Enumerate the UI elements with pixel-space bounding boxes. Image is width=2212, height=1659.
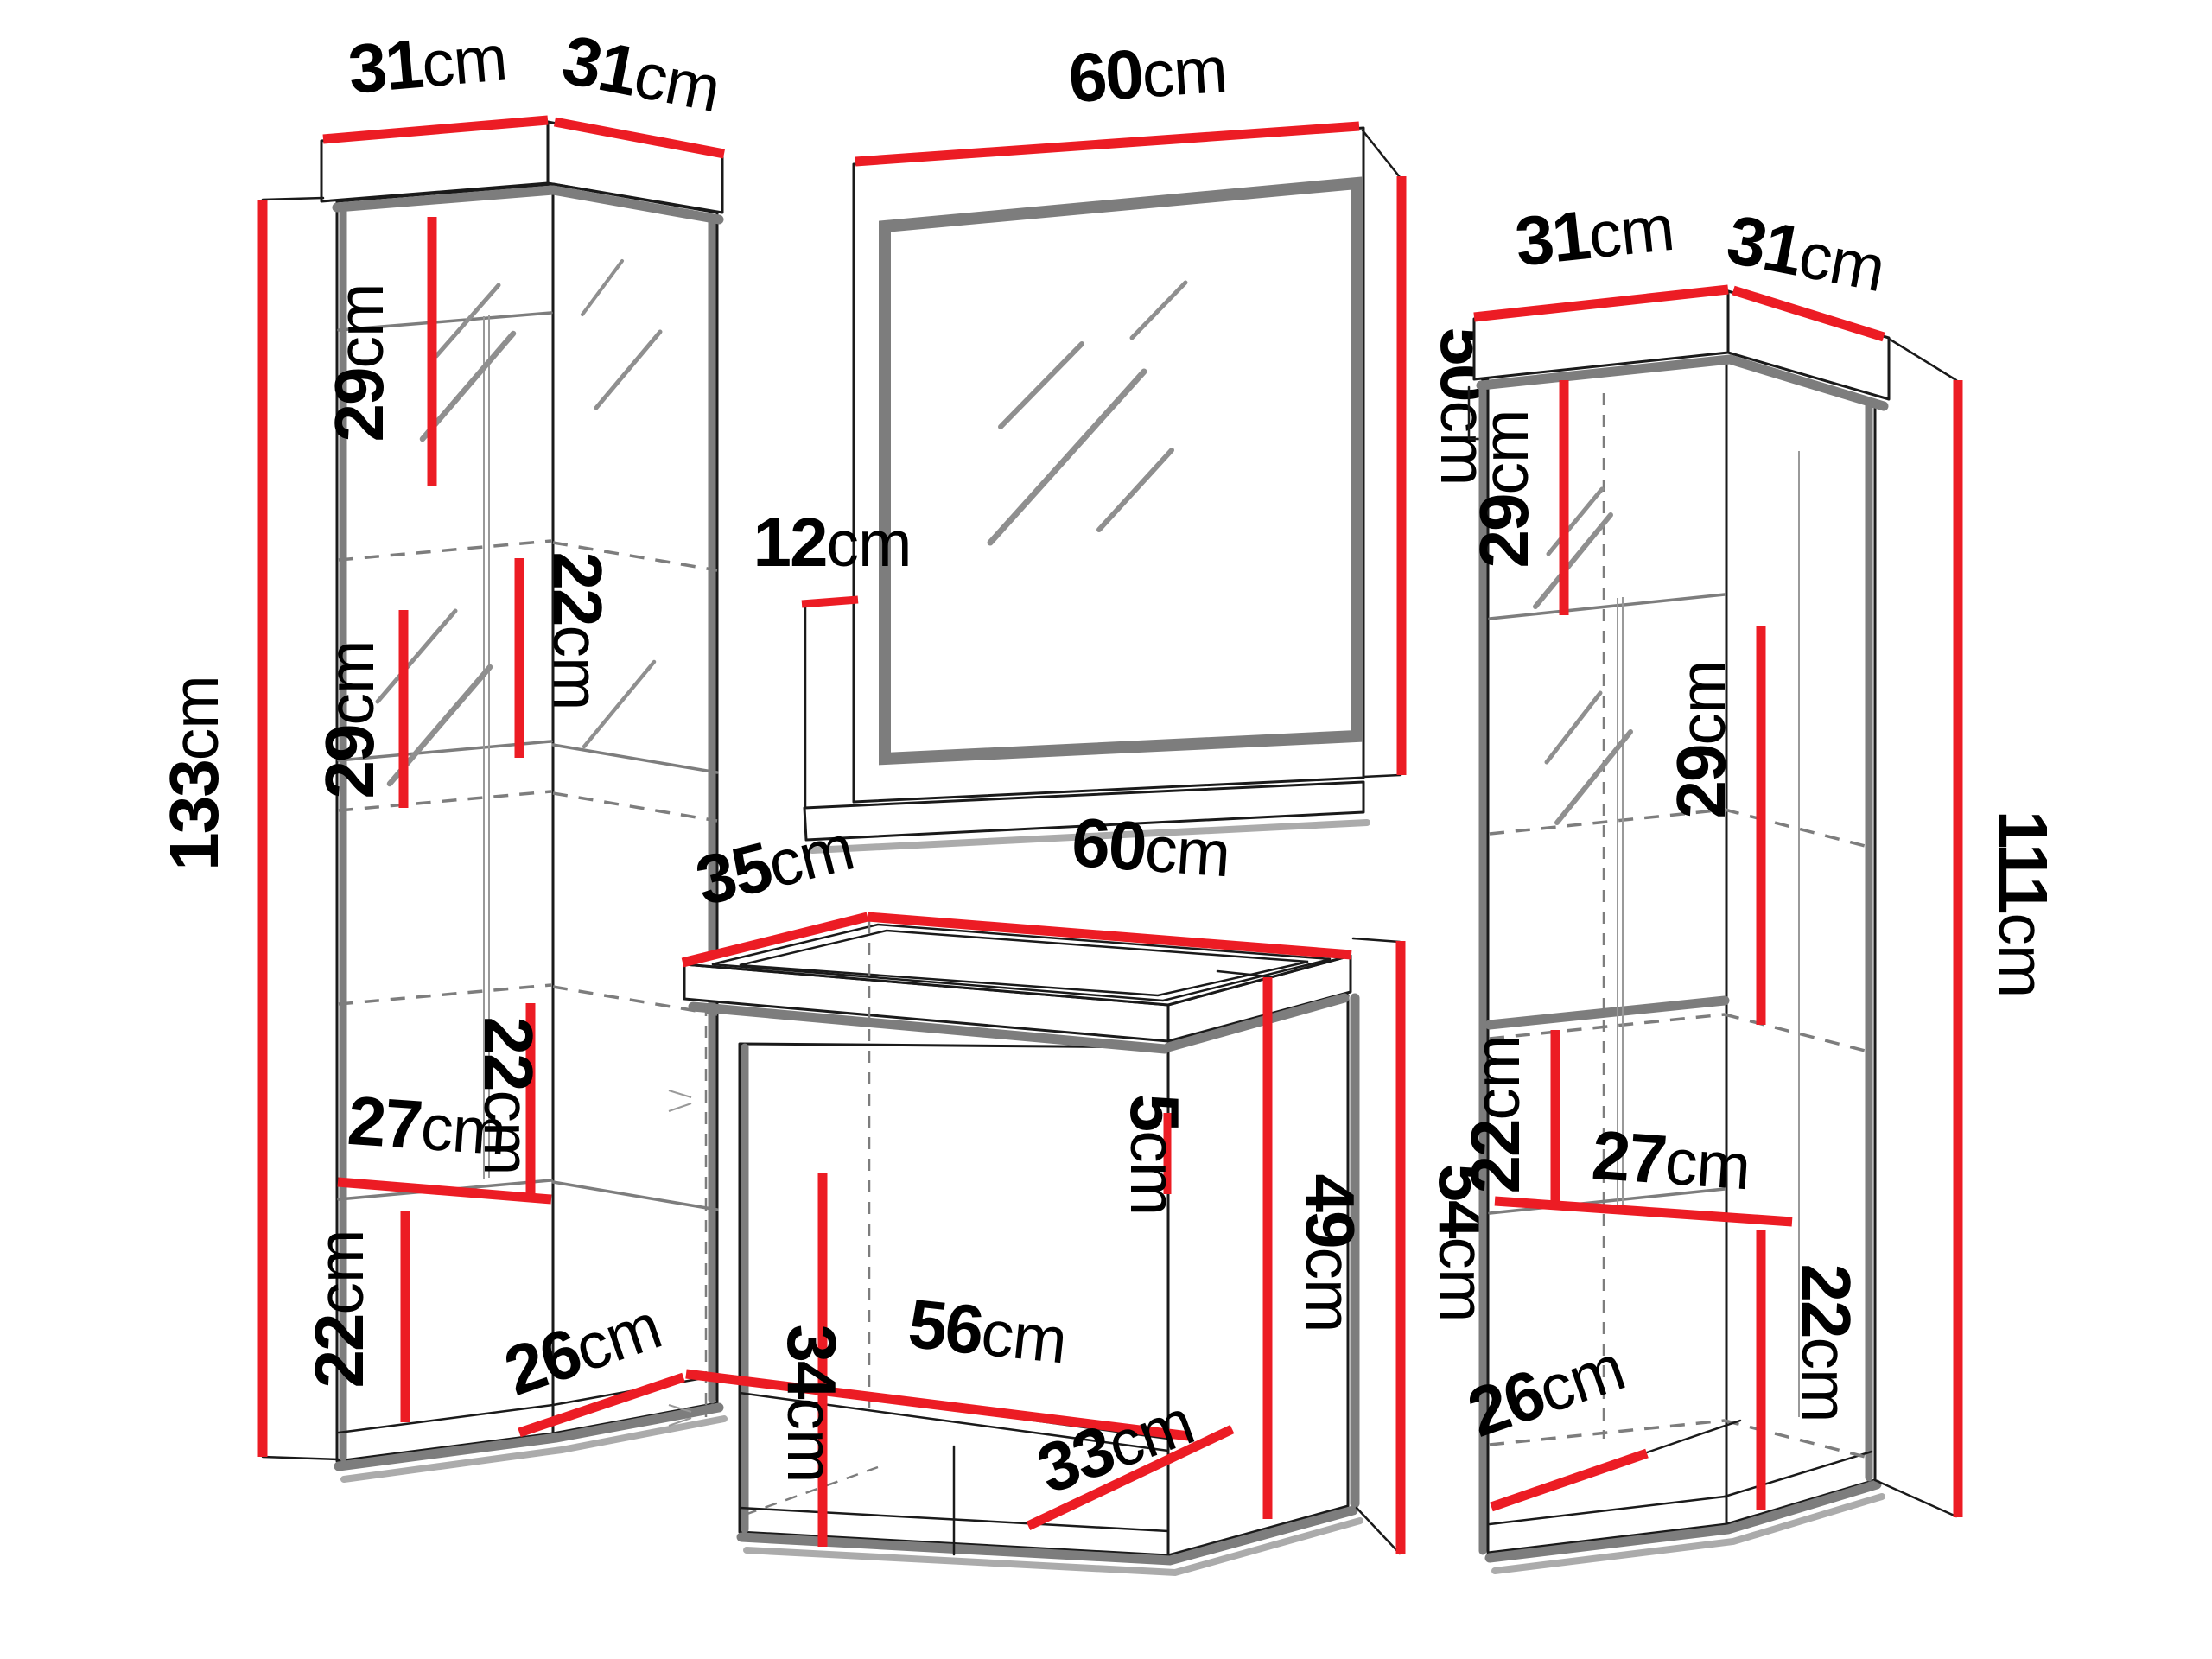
dim-label-mirror-width: 60cm: [1066, 29, 1230, 118]
dim-label-right-inner-width: 27cm: [1590, 1116, 1753, 1205]
dim-label-right-height: 111cm: [1985, 810, 2062, 998]
dim-label-left-shelf-bottom: 22cm: [301, 1230, 378, 1389]
mirror-frame: [885, 183, 1357, 759]
furniture-dimensions-diagram: 31cm 31cm 133cm 29cm 22cm 29cm 22cm 27cm…: [0, 0, 2212, 1659]
dim-label-left-height: 133cm: [156, 676, 232, 870]
dim-label-left-shelf-upper-mid: 22cm: [539, 552, 616, 710]
left-cabinet: 31cm 31cm 133cm 29cm 22cm 29cm 22cm 27cm…: [156, 17, 727, 1479]
dim-label-left-inner-width: 27cm: [346, 1082, 509, 1170]
dim-label-mirror-shelf-depth: 12cm: [753, 504, 912, 581]
dim-label-right-shelf-top: 29cm: [1465, 410, 1542, 569]
sink-cabinet: 35cm 60cm 5cm 56cm 34cm 33cm 49cm 54cm: [669, 804, 1502, 1573]
right-cabinet: 31cm 31cm 29cm 29cm 22cm 27cm 22cm 26cm …: [1457, 188, 2062, 1571]
dim-label-right-shelf-bottom: 22cm: [1788, 1264, 1865, 1422]
dim-line-mirror-shelf-depth: [802, 600, 858, 604]
dim-label-left-shelf-top: 29cm: [321, 284, 397, 442]
dim-label-left-shelf-mid: 29cm: [311, 641, 388, 799]
mirror-structure: [804, 128, 1400, 850]
dim-label-right-top-width: 31cm: [1511, 188, 1676, 281]
dim-label-sink-door-height: 49cm: [1292, 1174, 1369, 1332]
dim-label-right-shelf-mid: 29cm: [1662, 661, 1739, 819]
left-cabinet-side-face: [553, 184, 717, 1433]
dim-label-sink-inner-height: 34cm: [773, 1325, 850, 1483]
dim-label-sink-top-width: 60cm: [1070, 804, 1233, 892]
dim-label-left-top-depth: 31cm: [556, 21, 727, 126]
diagram-canvas: 31cm 31cm 133cm 29cm 22cm 29cm 22cm 27cm…: [0, 0, 2212, 1659]
dim-label-sink-basin-height: 5cm: [1116, 1094, 1193, 1215]
dim-label-left-top-width: 31cm: [346, 17, 510, 108]
dim-label-right-shelf-lower: 22cm: [1457, 1036, 1534, 1194]
mirror: 60cm 50cm 12cm: [753, 29, 1503, 850]
